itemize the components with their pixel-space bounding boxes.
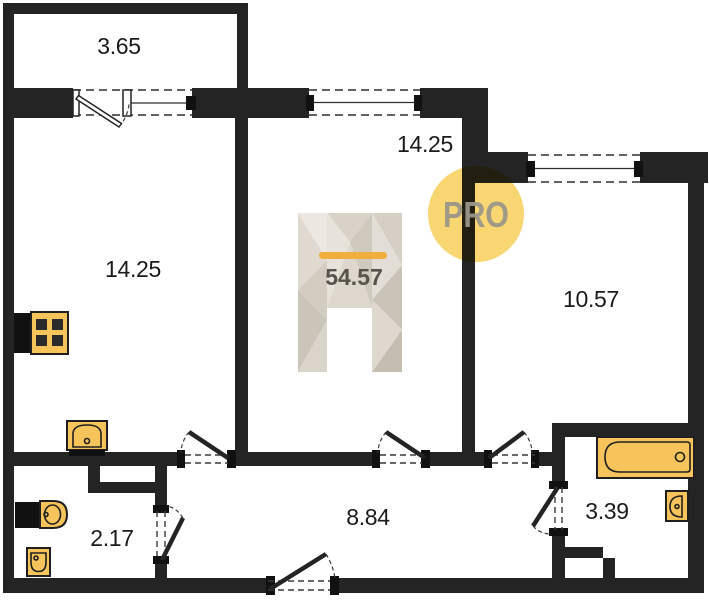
accent-bar bbox=[319, 252, 387, 259]
wall-segment bbox=[3, 98, 14, 593]
toilet-icon bbox=[15, 501, 67, 528]
pro-badge-label: PRO bbox=[443, 194, 509, 235]
door-swing-arc bbox=[378, 432, 386, 453]
balcony-door-leaf bbox=[76, 96, 122, 128]
stove-burner bbox=[52, 319, 63, 330]
door-post bbox=[330, 576, 339, 595]
door-leaf bbox=[189, 432, 228, 458]
sink-base bbox=[69, 450, 105, 456]
door-entrance bbox=[266, 554, 339, 595]
door-right-room bbox=[484, 432, 539, 468]
wall-segment bbox=[552, 423, 704, 437]
door-swing-arc bbox=[533, 526, 551, 534]
window-middle-room bbox=[306, 90, 422, 115]
door-leaf bbox=[533, 487, 558, 526]
area-label-room-right: 10.57 bbox=[563, 286, 619, 312]
wall-segment bbox=[338, 578, 704, 593]
corner-sink-icon bbox=[27, 548, 50, 576]
wall-segment bbox=[88, 482, 167, 493]
stove-burner bbox=[36, 335, 47, 346]
washbasin-icon bbox=[666, 491, 688, 521]
wall-segment bbox=[237, 3, 248, 98]
kitchen-sink-icon bbox=[67, 421, 107, 456]
door-wc bbox=[153, 505, 183, 564]
window-right-room bbox=[526, 155, 643, 182]
wall-segment bbox=[603, 558, 615, 578]
door-post bbox=[153, 505, 169, 513]
door-post bbox=[227, 450, 236, 468]
door-post bbox=[421, 450, 430, 468]
door-swing-arc bbox=[181, 432, 189, 453]
wall-segment bbox=[420, 88, 488, 118]
bathtub-icon bbox=[597, 437, 694, 478]
stove-icon bbox=[14, 312, 68, 354]
stove-mount bbox=[14, 313, 31, 353]
door-bathroom bbox=[533, 481, 568, 536]
pro-badge: PRO bbox=[428, 166, 524, 262]
wall-segment bbox=[552, 530, 565, 578]
wall-segment bbox=[192, 88, 309, 118]
door-leaf bbox=[270, 554, 326, 589]
wall-segment bbox=[688, 152, 704, 593]
door-middle-room bbox=[372, 432, 430, 468]
area-label-hallway: 8.84 bbox=[346, 504, 390, 530]
wall-segment bbox=[565, 547, 603, 558]
watermark-logo: 54.57 bbox=[298, 213, 402, 372]
wall-segment bbox=[235, 118, 248, 466]
door-jamb bbox=[73, 90, 79, 116]
stove-burner bbox=[36, 319, 47, 330]
wall-segment bbox=[422, 452, 492, 466]
wall-segment bbox=[236, 452, 373, 466]
wall-segment bbox=[3, 578, 267, 593]
stove-body bbox=[31, 312, 68, 354]
balcony-door-and-window bbox=[73, 90, 196, 127]
total-area-label: 54.57 bbox=[325, 264, 383, 290]
window-end-post bbox=[414, 95, 422, 111]
door-kitchen bbox=[177, 432, 236, 468]
stove-burner bbox=[52, 335, 63, 346]
floor-plan: 54.57 PRO 3.65 14.25 14.25 10.57 8.84 2.… bbox=[0, 0, 709, 600]
area-label-kitchen: 14.25 bbox=[105, 256, 161, 282]
door-leaf bbox=[386, 432, 425, 458]
wall-segment bbox=[3, 3, 14, 98]
wall-segment bbox=[3, 3, 248, 14]
area-label-wc: 2.17 bbox=[90, 525, 134, 551]
area-label-room-middle: 14.25 bbox=[397, 131, 453, 157]
door-post bbox=[372, 450, 380, 468]
toilet-tank bbox=[15, 502, 40, 528]
door-post bbox=[549, 528, 568, 536]
door-swing-arc bbox=[524, 432, 532, 453]
area-label-bathroom: 3.39 bbox=[585, 498, 629, 524]
area-label-balcony: 3.65 bbox=[97, 33, 141, 59]
wall-segment bbox=[14, 88, 73, 118]
door-leaf bbox=[489, 432, 524, 458]
window-end-post bbox=[526, 161, 535, 177]
window-end-post bbox=[186, 96, 196, 110]
window-end-post bbox=[306, 95, 314, 111]
window-end-post bbox=[634, 161, 643, 177]
